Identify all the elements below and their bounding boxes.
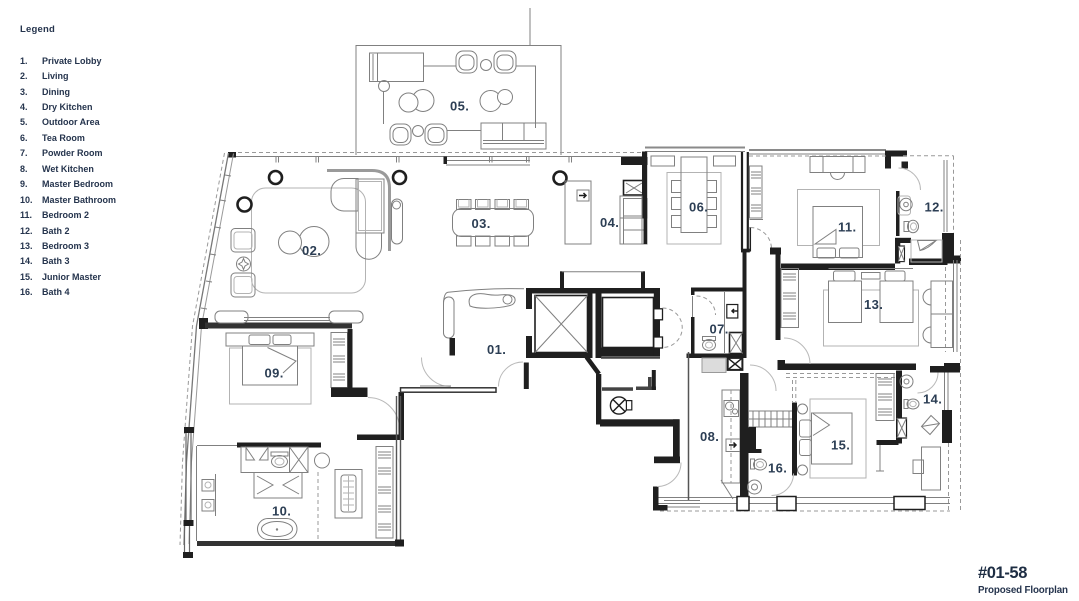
svg-text:06.: 06.: [689, 200, 708, 215]
svg-text:13.: 13.: [864, 297, 883, 312]
svg-text:11.: 11.: [838, 220, 857, 235]
svg-text:14.: 14.: [923, 392, 942, 407]
svg-text:15.: 15.: [831, 438, 850, 453]
svg-text:04.: 04.: [600, 215, 619, 230]
svg-text:12.: 12.: [925, 200, 944, 215]
svg-text:03.: 03.: [472, 216, 491, 231]
svg-text:09.: 09.: [265, 366, 284, 381]
svg-text:10.: 10.: [272, 504, 291, 519]
svg-text:05.: 05.: [450, 99, 469, 114]
svg-text:16.: 16.: [768, 461, 787, 476]
svg-text:08.: 08.: [700, 429, 719, 444]
svg-text:07.: 07.: [710, 322, 729, 337]
svg-text:01.: 01.: [487, 342, 506, 357]
svg-text:02.: 02.: [302, 243, 321, 258]
